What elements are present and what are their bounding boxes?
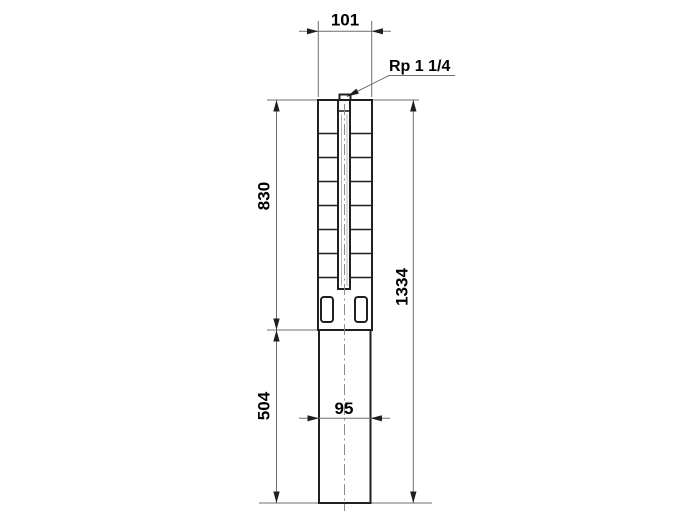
arrow-down-icon: [273, 492, 279, 504]
inlet-opening-right: [355, 297, 367, 322]
arrow-right-icon: [307, 28, 318, 34]
inlet-opening-left: [321, 297, 333, 322]
arrow-down-icon: [410, 492, 416, 504]
arrow-down-icon: [273, 319, 279, 331]
dim-text-lower-length: 504: [255, 391, 274, 420]
arrow-up-icon: [273, 330, 279, 342]
dim-text-top-width: 101: [331, 11, 359, 30]
dim-text-total-length: 1334: [393, 268, 412, 306]
arrow-up-icon: [273, 100, 279, 112]
leader-arrow-icon: [347, 89, 359, 97]
arrow-up-icon: [410, 100, 416, 112]
pump-dimension-drawing: 101 95 830 504 1334 Rp 1 1/4: [0, 0, 700, 512]
arrow-right-icon: [308, 415, 320, 421]
arrow-left-icon: [371, 415, 383, 421]
dim-text-motor-width: 95: [335, 399, 354, 418]
connection-leader-line: [347, 76, 455, 97]
dim-text-upper-length: 830: [255, 182, 274, 210]
arrow-left-icon: [372, 28, 383, 34]
connection-label: Rp 1 1/4: [389, 58, 450, 75]
drawing-canvas: 101 95 830 504 1334 Rp 1 1/4: [0, 0, 700, 512]
